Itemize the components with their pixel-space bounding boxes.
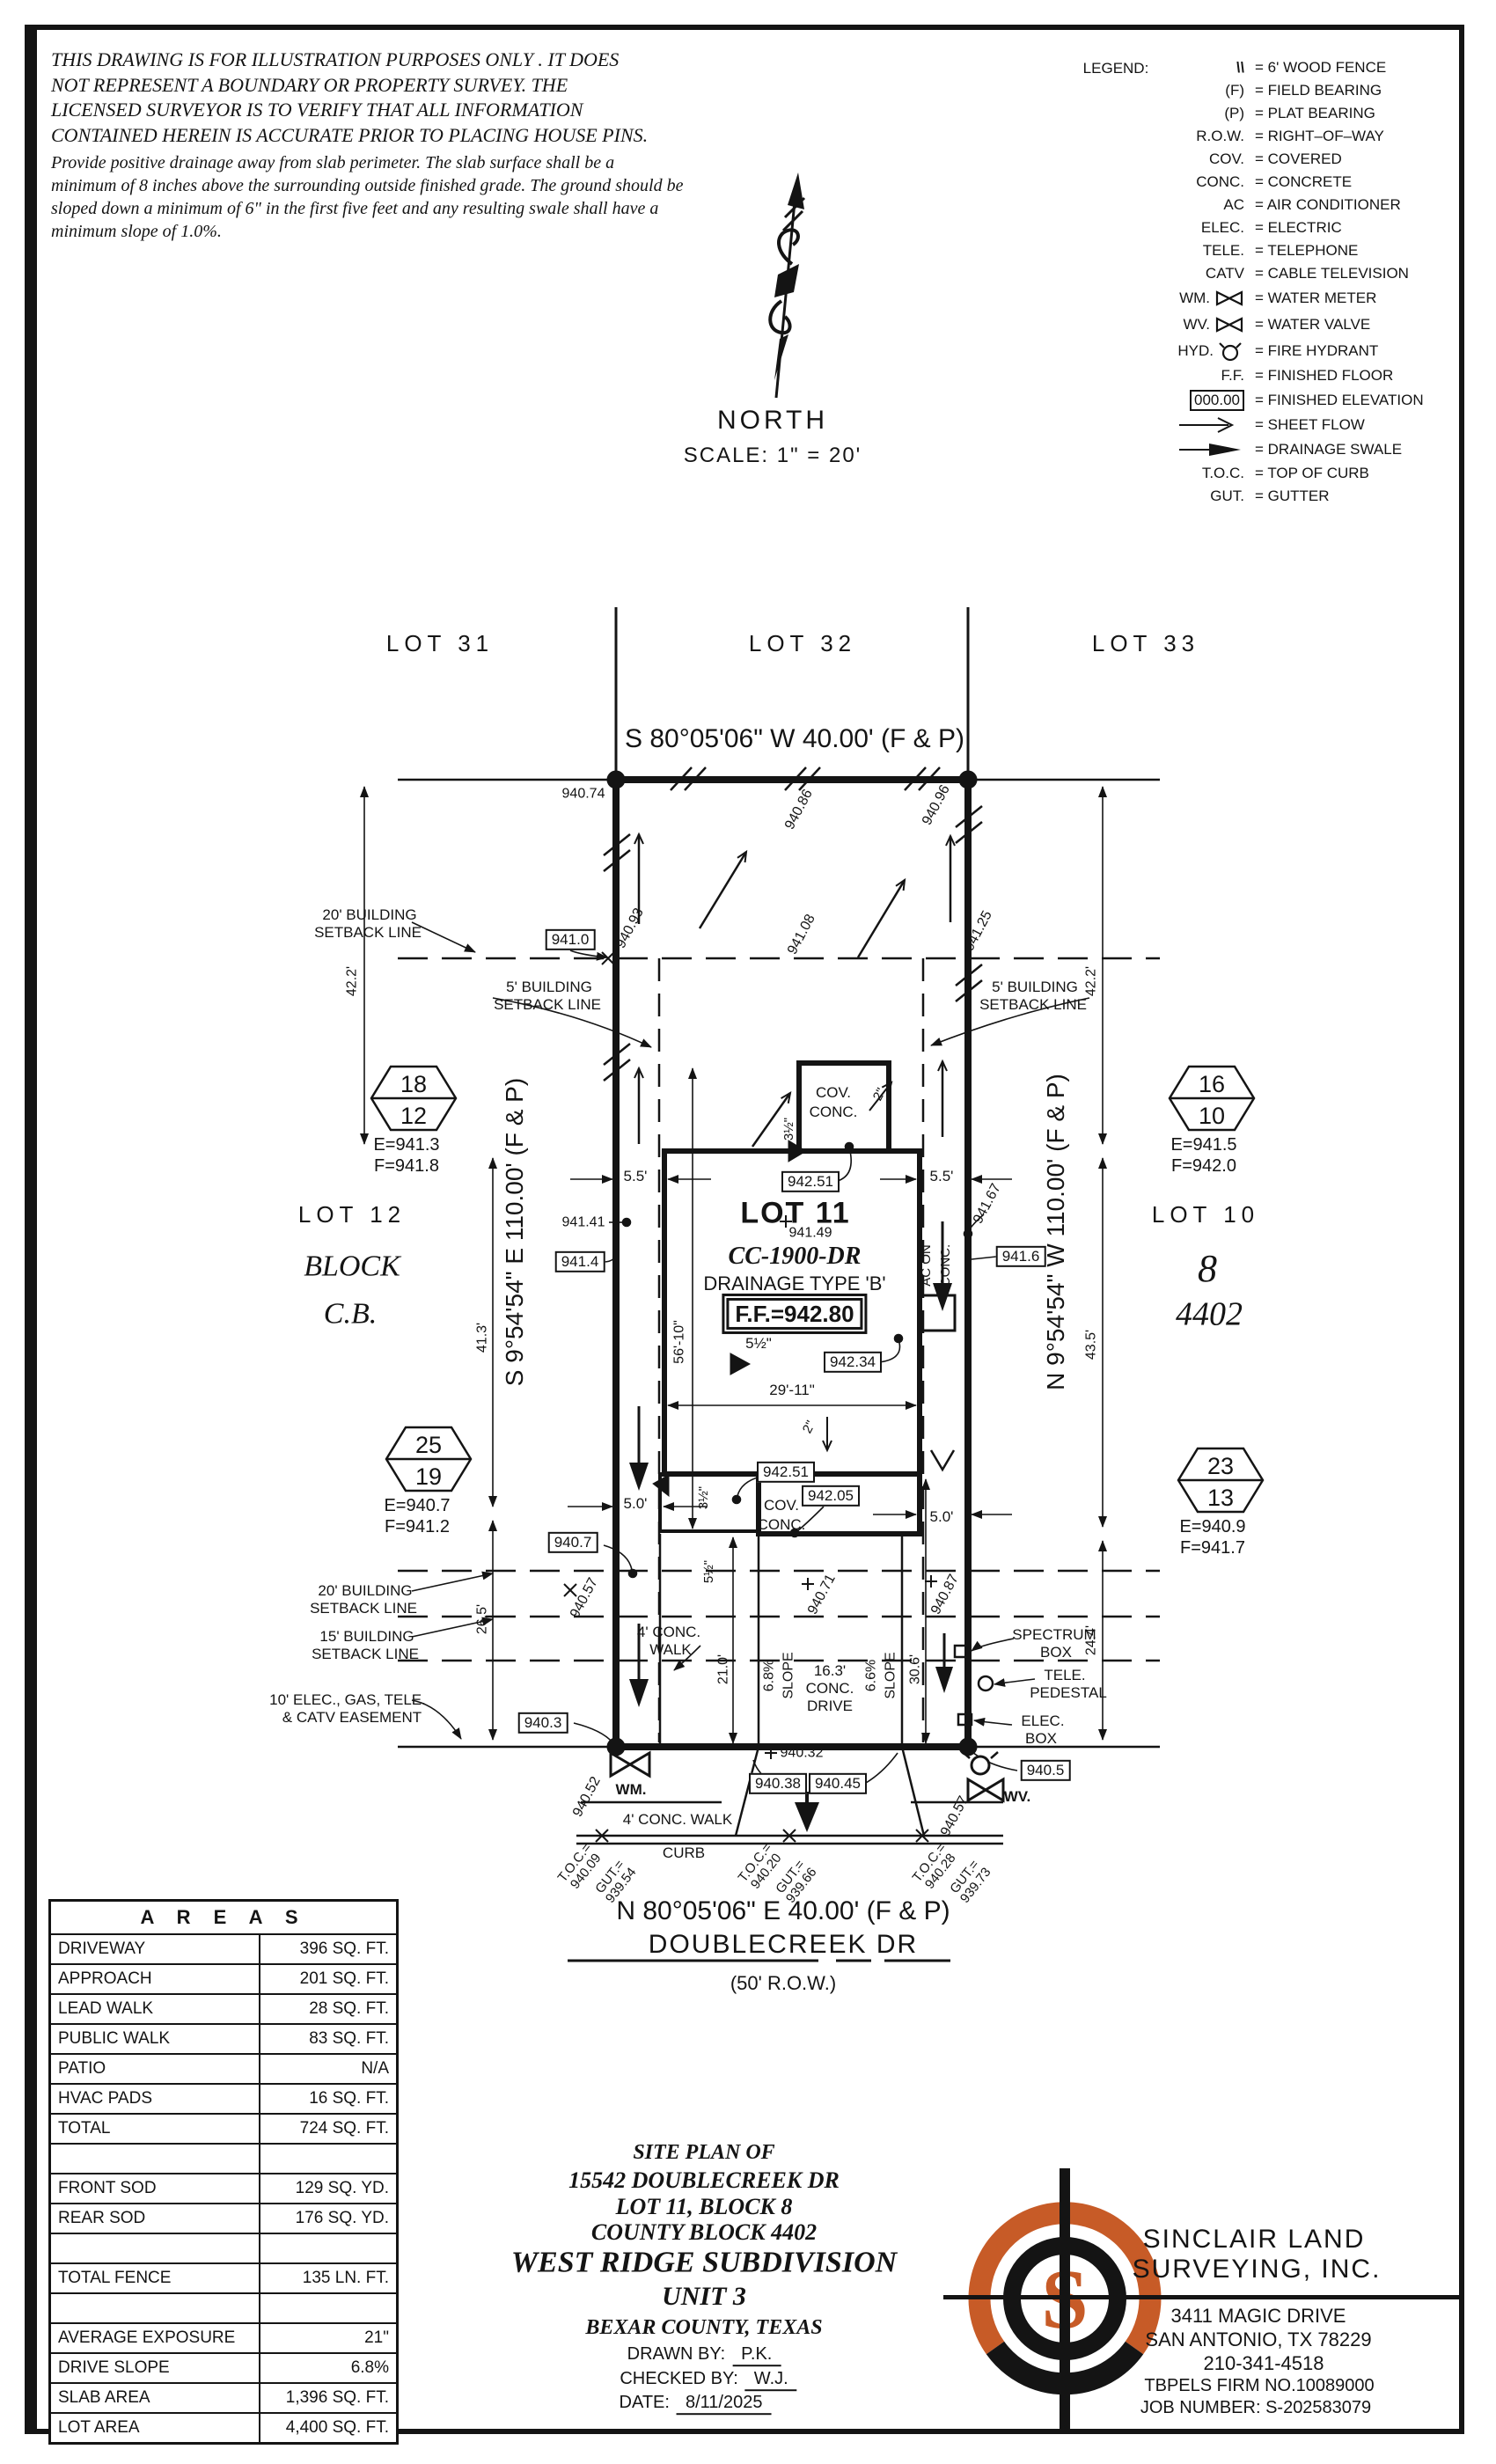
hex-18-12: 18 12 [371,1067,456,1130]
curb-elevation: E=940.7 [384,1497,450,1516]
spot-elevation: 940.74 [562,786,605,801]
boxed-elevation: 941.4 [555,1251,605,1272]
survey-sheet: THIS DRAWING IS FOR ILLUSTRATION PURPOSE… [0,0,1496,2464]
company-name: SINCLAIR LAND [1143,2226,1366,2254]
covered-conc-label: CONC. [758,1517,806,1533]
company-name: SURVEYING, INC. [1133,2255,1382,2284]
spot-elevation: 941.49 [789,1225,832,1240]
table-row: LEAD WALK28 SQ. FT. [51,1995,396,2025]
slope-label: SLOPE [781,1652,796,1698]
dimension-label: 42.2' [344,966,359,996]
covered-conc-label: COV. [816,1085,851,1101]
unit-label: UNIT 3 [662,2283,746,2311]
svg-text:25: 25 [415,1432,442,1458]
titleblock-lot-block: LOT 11, BLOCK 8 [616,2195,793,2219]
date-row: DATE:8/11/2025 [620,2394,772,2415]
plan-number: CC-1900-DR [729,1243,862,1270]
boxed-elevation: 942.51 [757,1462,815,1483]
company-address: SAN ANTONIO, TX 78229 [1145,2329,1371,2350]
boxed-elevation: 940.38 [749,1773,807,1794]
hex-23-13: 23 13 [1178,1448,1263,1512]
table-row [51,2234,396,2264]
right-of-way-label: (50' R.O.W.) [730,1973,836,1994]
svg-text:10: 10 [1199,1103,1225,1129]
dimension-label: 21.0' [715,1654,730,1684]
tele-pedestal-label: TELE. [1044,1668,1085,1683]
bearing-west-line: S 9°54'54" E 110.00' (F & P) [502,1078,528,1386]
neighbor-lot-32: LOT 32 [749,631,856,656]
table-row: LOT AREA4,400 SQ. FT. [51,2414,396,2442]
dimension-label: 5.0' [624,1496,648,1512]
boxed-elevation: 942.05 [802,1485,860,1507]
dimension-label: 5.5' [930,1169,954,1184]
county-block-label: C.B. [324,1299,377,1331]
checked-by-value: W.J. [745,2370,797,2391]
svg-text:23: 23 [1207,1453,1234,1479]
svg-text:19: 19 [415,1463,442,1490]
block-label: BLOCK [304,1251,400,1284]
svg-text:13: 13 [1207,1485,1234,1511]
drawn-by-value: P.K. [732,2345,781,2366]
curb-elevation: E=940.9 [1179,1518,1245,1537]
neighbor-lot-10: LOT 10 [1152,1202,1259,1227]
boxed-elevation: 940.3 [518,1712,568,1734]
finished-floor-elevation: F.F.=942.80 [726,1298,862,1330]
setback-label: 15' BUILDING [319,1629,414,1645]
svg-text:18: 18 [400,1071,427,1097]
bearing-east-line: N 9°54'54" W 110.00' (F & P) [1043,1074,1069,1390]
hex-16-10: 16 10 [1170,1067,1254,1130]
walk-label: WALK [649,1642,692,1658]
flowline-elevation: F=942.0 [1171,1157,1236,1177]
setback-label: 5' BUILDING [992,979,1078,995]
table-row: REAR SOD176 SQ. YD. [51,2204,396,2234]
titleblock-line: SITE PLAN OF [633,2142,774,2165]
elec-box-label: BOX [1025,1731,1057,1747]
county-state: BEXAR COUNTY, TEXAS [585,2317,822,2340]
job-number: JOB NUMBER: S-202583079 [1140,2399,1371,2418]
setback-label: 5' BUILDING [506,979,592,995]
neighbor-lot-12: LOT 12 [298,1202,406,1227]
bearing-north-line: S 80°05'06" W 40.00' (F & P) [625,725,964,753]
setback-label: 20' BUILDING [318,1583,412,1599]
street-name: DOUBLECREEK DR [649,1931,918,1959]
covered-conc-label: COV. [764,1498,799,1514]
neighbor-lot-33: LOT 33 [1092,631,1199,656]
spectrum-box-label: SPECTRUM [1012,1627,1096,1643]
water-meter-label: WM. [616,1782,647,1798]
firm-number: TBPELS FIRM NO.10089000 [1144,2377,1374,2396]
drainage-type: DRAINAGE TYPE 'B' [703,1273,885,1294]
spot-elevation: 940.32 [781,1745,824,1760]
flowline-elevation: F=941.8 [374,1157,439,1177]
table-row: FRONT SOD129 SQ. YD. [51,2174,396,2204]
easement-label: 10' ELEC., GAS, TELE. [269,1692,426,1708]
dimension-label: 30.6' [907,1654,922,1684]
table-row: DRIVEWAY396 SQ. FT. [51,1935,396,1965]
exposure-label: 5½" [702,1560,716,1583]
curb-label: CURB [663,1845,705,1861]
spectrum-box-label: BOX [1040,1645,1072,1661]
table-row: AVERAGE EXPOSURE21" [51,2324,396,2354]
table-row [51,2294,396,2324]
boxed-elevation: 940.7 [548,1532,598,1553]
table-row: APPROACH201 SQ. FT. [51,1965,396,1995]
bearing-south-line: N 80°05'06" E 40.00' (F & P) [616,1897,950,1925]
drive-width-label: 16.3' [814,1663,846,1679]
areas-table: A R E A S DRIVEWAY396 SQ. FT. APPROACH20… [48,1899,399,2445]
setback-label: SETBACK LINE [314,925,422,941]
setback-label: 20' BUILDING [322,907,416,923]
boxed-elevation: 942.34 [824,1352,882,1373]
hex-25-19: 25 19 [386,1427,471,1491]
boxed-elevation: 941.0 [546,929,596,950]
flowline-elevation: F=941.2 [385,1518,450,1537]
areas-table-title: A R E A S [51,1902,396,1935]
checked-by-row: CHECKED BY:W.J. [620,2370,796,2391]
table-row: DRIVE SLOPE6.8% [51,2354,396,2384]
covered-conc-label: CONC. [810,1104,858,1120]
easement-label: & CATV EASEMENT [282,1710,422,1726]
setback-label: SETBACK LINE [494,997,601,1013]
elec-box-label: ELEC. [1021,1713,1064,1729]
water-valve-label: WV. [1004,1789,1031,1805]
drive-label: DRIVE [807,1698,853,1714]
setback-label: SETBACK LINE [979,997,1087,1013]
dimension-label: 56'-10" [671,1320,686,1364]
neighbor-lot-31: LOT 31 [386,631,494,656]
dimension-label: 42.2' [1083,966,1098,996]
exposure-label: 5½" [745,1336,772,1352]
exposure-label: 3½" [782,1118,796,1140]
dimension-label: 29'-11" [769,1382,815,1398]
svg-text:12: 12 [400,1103,427,1129]
subdivision-name: WEST RIDGE SUBDIVISION [511,2248,897,2280]
table-row: PATION/A [51,2055,396,2085]
curb-elevation: E=941.3 [373,1136,439,1155]
spot-elevation: 941.41 [562,1214,605,1229]
boxed-elevation: 941.6 [996,1246,1046,1267]
table-row: TOTAL724 SQ. FT. [51,2115,396,2145]
slope-label: 6.6% [863,1660,878,1691]
boxed-elevation: 942.51 [781,1171,840,1192]
dimension-label: 43.5' [1083,1330,1098,1360]
curb-elevation: E=941.5 [1170,1136,1236,1155]
walk-label: 4' CONC. [637,1624,700,1640]
drive-label: CONC. [806,1681,854,1697]
flowline-elevation: F=941.7 [1180,1539,1245,1558]
svg-text:16: 16 [1199,1071,1225,1097]
dimension-label: 5.0' [930,1509,954,1525]
table-row: HVAC PADS16 SQ. FT. [51,2085,396,2115]
ac-pad-label: CONC. [939,1244,953,1287]
walk-label: 4' CONC. WALK [623,1812,732,1828]
table-row: PUBLIC WALK83 SQ. FT. [51,2025,396,2055]
boxed-elevation: 940.5 [1021,1760,1071,1781]
boxed-elevation: 940.45 [809,1773,867,1794]
dimension-label: 5.5' [624,1169,648,1184]
slope-label: 6.8% [761,1660,776,1691]
drawn-by-row: DRAWN BY:P.K. [627,2345,781,2366]
setback-label: SETBACK LINE [312,1646,419,1662]
date-value: 8/11/2025 [677,2394,772,2415]
dimension-label: 41.3' [474,1323,489,1353]
slope-label: SLOPE [883,1652,898,1698]
company-address: 3411 MAGIC DRIVE [1171,2306,1346,2327]
county-block-number: 4402 [1176,1296,1243,1332]
setback-label: SETBACK LINE [310,1601,417,1617]
company-divider-line [943,2295,1463,2299]
titleblock-county-block: COUNTY BLOCK 4402 [591,2220,817,2245]
dimension-label: 26.5' [474,1604,489,1634]
tele-pedestal-label: PEDESTAL [1030,1685,1107,1701]
block-number: 8 [1198,1248,1217,1290]
table-row: TOTAL FENCE135 LN. FT. [51,2264,396,2294]
ac-pad-label: AC ON [920,1244,934,1287]
exposure-label: 3½" [697,1486,711,1509]
titleblock-address: 15542 DOUBLECREEK DR [568,2168,840,2193]
table-row: SLAB AREA1,396 SQ. FT. [51,2384,396,2414]
company-phone: 210-341-4518 [1203,2353,1324,2374]
table-row [51,2145,396,2174]
